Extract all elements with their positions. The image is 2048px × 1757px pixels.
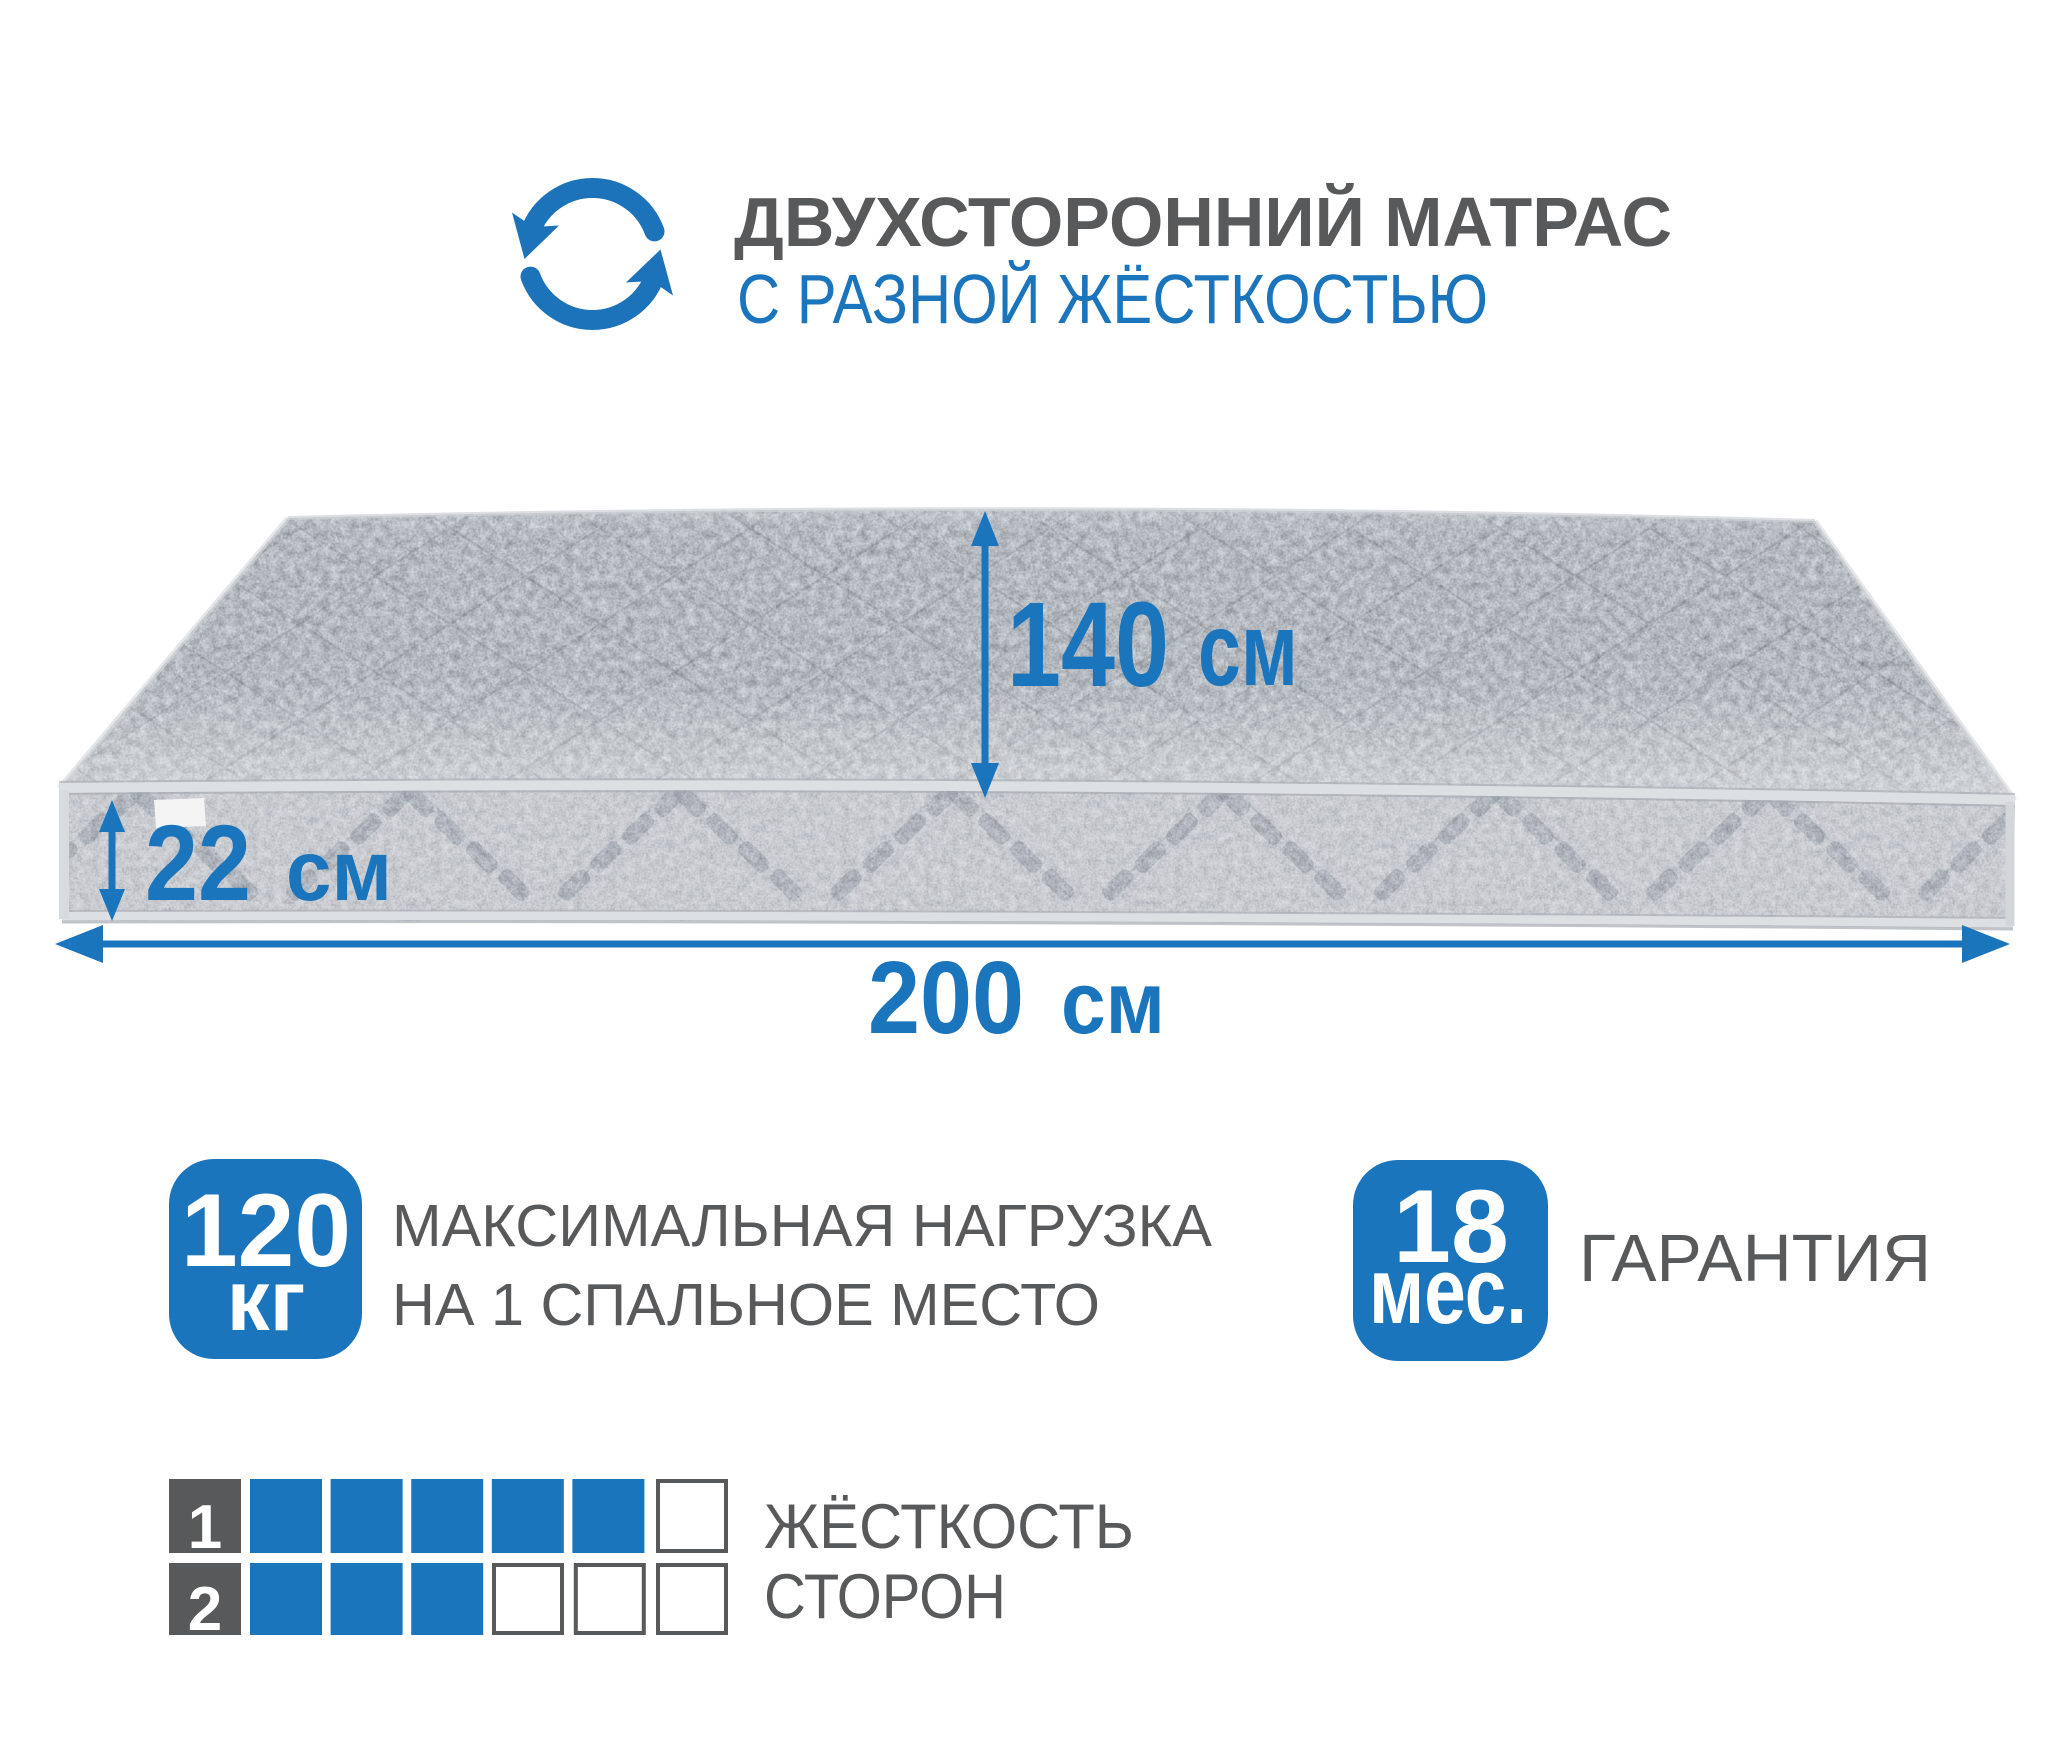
svg-text:см: см	[1198, 592, 1298, 708]
svg-text:мес.: мес.	[1369, 1238, 1527, 1343]
svg-text:ЖЁСТКОСТЬ: ЖЁСТКОСТЬ	[764, 1492, 1134, 1562]
svg-text:МАКСИМАЛЬНАЯ НАГРУЗКА: МАКСИМАЛЬНАЯ НАГРУЗКА	[392, 1193, 1213, 1259]
svg-text:кг: кг	[227, 1253, 306, 1349]
svg-text:СТОРОН: СТОРОН	[764, 1562, 1006, 1632]
svg-text:см: см	[286, 824, 392, 919]
svg-text:22: 22	[145, 802, 251, 923]
svg-text:С РАЗНОЙ ЖЁСТКОСТЬЮ: С РАЗНОЙ ЖЁСТКОСТЬЮ	[737, 259, 1488, 338]
svg-text:см: см	[1061, 953, 1165, 1052]
svg-text:ДВУХСТОРОННИЙ МАТРАС: ДВУХСТОРОННИЙ МАТРАС	[734, 182, 1672, 261]
svg-text:ГАРАНТИЯ: ГАРАНТИЯ	[1579, 1221, 1931, 1296]
svg-text:140: 140	[1007, 576, 1169, 712]
svg-text:200: 200	[868, 940, 1024, 1055]
svg-text:2: 2	[188, 1575, 222, 1644]
svg-text:1: 1	[188, 1493, 222, 1562]
svg-text:НА 1 СПАЛЬНОЕ МЕСТО: НА 1 СПАЛЬНОЕ МЕСТО	[392, 1272, 1100, 1338]
